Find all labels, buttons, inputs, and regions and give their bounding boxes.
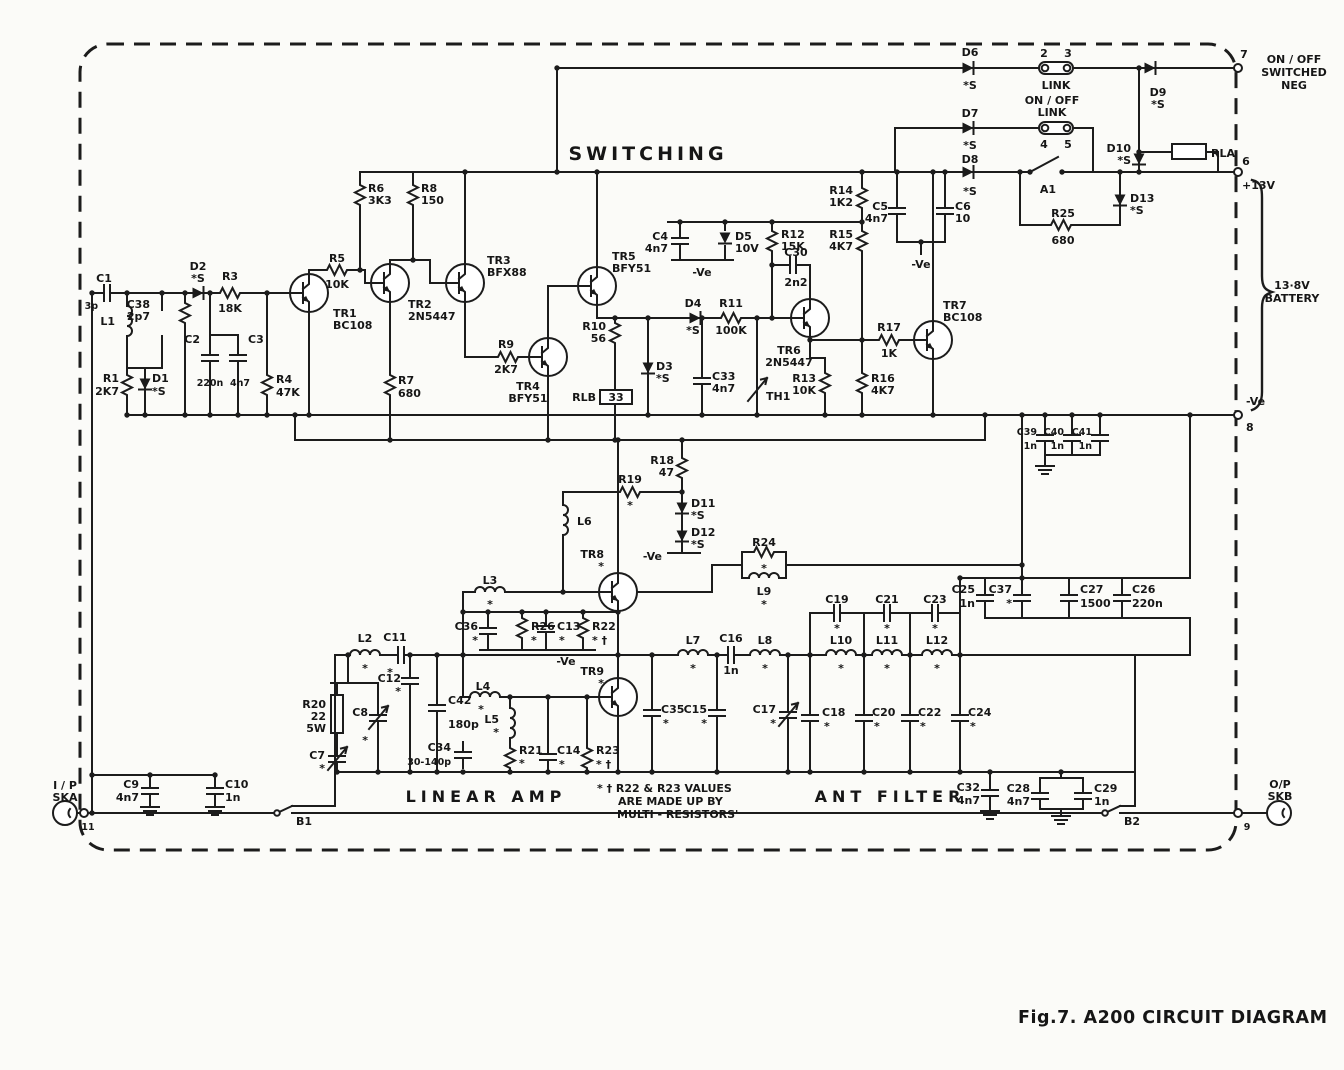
c42-capacitor xyxy=(429,695,445,721)
r4-resistor xyxy=(262,372,272,398)
r14-value: 1K2 xyxy=(829,196,853,209)
r23-resistor xyxy=(582,745,592,771)
r17-value: 1K xyxy=(881,347,898,360)
r26-label: R26 xyxy=(531,620,555,633)
neg-ve-c4d5: -Ve xyxy=(692,266,711,279)
r4-value: 47K xyxy=(276,386,300,399)
c21-value: * xyxy=(884,622,890,635)
c15-value: * xyxy=(701,717,707,730)
l12-label: L12 xyxy=(926,634,948,647)
terminal-7 xyxy=(1234,64,1242,72)
circuit-diagram-page: SWITCHING LINEAR AMP ANT FILTER Fig.7. A… xyxy=(0,0,1344,1070)
d7-diode xyxy=(963,122,974,134)
l4-label: L4 xyxy=(476,680,491,693)
r24-value: * xyxy=(761,562,767,575)
c18-label: C18 xyxy=(822,706,845,719)
c9-value: 4n7 xyxy=(116,791,139,804)
r19-resistor xyxy=(617,487,643,497)
l7-label: L7 xyxy=(686,634,701,647)
c39-label: C39 xyxy=(1017,427,1037,438)
r14-resistor xyxy=(857,185,867,211)
figure-caption: Fig.7. A200 CIRCUIT DIAGRAM xyxy=(1018,1008,1328,1028)
d10-diode xyxy=(1133,154,1145,165)
c24-capacitor xyxy=(952,705,968,731)
r21-label: R21 xyxy=(519,744,543,757)
r22-label: R22 xyxy=(592,620,616,633)
c37-value: * xyxy=(1006,597,1012,610)
r6-value: 3K3 xyxy=(368,194,392,207)
c9-capacitor xyxy=(142,778,158,804)
l5-value: * xyxy=(493,726,499,739)
c12-capacitor xyxy=(402,668,418,694)
c40-value: 1n xyxy=(1051,441,1065,452)
r23-value: * † xyxy=(596,758,612,771)
r2-resistor xyxy=(180,300,190,326)
l2-label: L2 xyxy=(358,632,373,645)
r17-resistor xyxy=(876,335,902,345)
c22-label: C22 xyxy=(918,706,941,719)
r12-resistor xyxy=(767,228,777,254)
d1-diode xyxy=(139,379,151,390)
r26-resistor xyxy=(517,615,527,641)
r26-value: * xyxy=(531,634,537,647)
d3-value: *S xyxy=(656,372,670,385)
c6-capacitor xyxy=(937,198,953,224)
c20-capacitor xyxy=(856,705,872,731)
c32-label: C32 xyxy=(957,781,980,794)
r13-resistor xyxy=(820,370,830,396)
tr9-value: * xyxy=(598,677,604,690)
ska-input-socket xyxy=(53,801,77,825)
d6-value: *S xyxy=(963,79,977,92)
d4-diode xyxy=(690,312,701,324)
c8-label: C8 xyxy=(352,706,368,719)
l11-inductor xyxy=(872,650,902,655)
link-pin2: 2 xyxy=(1040,47,1048,60)
c8-value: * xyxy=(362,734,368,747)
c2-value: 220n xyxy=(197,378,224,389)
c34-value: 30-140p xyxy=(407,757,451,768)
l3-inductor xyxy=(475,587,505,592)
tr3-value: BFX88 xyxy=(487,266,527,279)
c34-label: C34 xyxy=(428,741,452,754)
d6-label: D6 xyxy=(962,46,979,59)
c18-value: * xyxy=(824,720,830,733)
l9-value: * xyxy=(761,598,767,611)
neg-ve-pin8: -Ve xyxy=(1246,395,1265,408)
c33-value: 4n7 xyxy=(712,382,735,395)
r16-value: 4K7 xyxy=(871,384,895,397)
r15-value: 4K7 xyxy=(829,240,853,253)
c36-value: * xyxy=(472,634,478,647)
c12-label: C12 xyxy=(378,672,401,685)
r22-value: * † xyxy=(592,634,608,647)
c12-value: * xyxy=(395,685,401,698)
tr7-value: BC108 xyxy=(943,311,982,324)
c2-label: C2 xyxy=(184,333,200,346)
c5-value: 4n7 xyxy=(865,212,888,225)
l10-inductor xyxy=(826,650,856,655)
terminal-6 xyxy=(1234,168,1242,176)
c15-label: C15 xyxy=(684,703,707,716)
d8-value: *S xyxy=(963,185,977,198)
c29-capacitor xyxy=(1075,783,1091,809)
c23-value: * xyxy=(932,622,938,635)
c21-capacitor xyxy=(874,605,900,621)
l12-inductor xyxy=(922,650,952,655)
c35-capacitor xyxy=(644,700,660,726)
ska-label: SKA xyxy=(53,791,78,804)
tr2-value: 2N5447 xyxy=(408,310,455,323)
skb-output-socket xyxy=(1267,801,1291,825)
pin11-label: 11 xyxy=(81,822,94,833)
c19-capacitor xyxy=(824,605,850,621)
c37-label: C37 xyxy=(989,583,1012,596)
d7-label: D7 xyxy=(962,107,979,120)
d9-diode xyxy=(1145,62,1156,74)
r18-value: 47 xyxy=(659,466,674,479)
ground-icon xyxy=(1052,816,1070,824)
d5-value: 10V xyxy=(735,242,759,255)
l4-value: * xyxy=(478,703,484,716)
r7-label: R7 xyxy=(398,374,414,387)
c28-value: 4n7 xyxy=(1007,795,1030,808)
b2-label: B2 xyxy=(1124,815,1140,828)
on-off-link-4-5 xyxy=(1039,122,1073,134)
r25-value: 680 xyxy=(1052,234,1075,247)
r8-resistor xyxy=(408,182,418,208)
tr4-transistor xyxy=(529,338,567,376)
c25-value: 1n xyxy=(960,597,976,610)
switched-neg-line1: ON / OFF xyxy=(1267,53,1322,66)
c16-value: 1n xyxy=(723,664,739,677)
note-line1: * † R22 & R23 VALUES xyxy=(597,782,732,795)
c26-label: C26 xyxy=(1132,583,1156,596)
c11-label: C11 xyxy=(383,631,406,644)
r9-value: 2K7 xyxy=(494,363,518,376)
d11-value: *S xyxy=(691,509,705,522)
c27-capacitor xyxy=(1061,585,1077,611)
l3-value: * xyxy=(487,598,493,611)
r24-label: R24 xyxy=(752,536,776,549)
l7-value: * xyxy=(690,662,696,675)
c30-value: 2n2 xyxy=(784,276,807,289)
tr8-value: * xyxy=(598,560,604,573)
d9-value: *S xyxy=(1151,98,1165,111)
c7-label: C7 xyxy=(309,749,325,762)
c6-value: 10 xyxy=(955,212,971,225)
c2-capacitor xyxy=(202,345,218,371)
r19-value: * xyxy=(627,499,633,512)
c39-value: 1n xyxy=(1024,441,1038,452)
rla-label: RLA xyxy=(1211,147,1235,160)
labels: SWITCHING LINEAR AMP ANT FILTER Fig.7. A… xyxy=(53,46,1328,1028)
c41-value: 1n xyxy=(1079,441,1093,452)
r7-resistor xyxy=(385,372,395,398)
c10-label: C10 xyxy=(225,778,249,791)
c35-label: C35 xyxy=(661,703,684,716)
a1-switch-label: A1 xyxy=(1040,183,1056,196)
c13-value: * xyxy=(559,634,565,647)
note-line3: MULTI - RESISTORS' xyxy=(617,808,738,821)
l8-inductor xyxy=(750,650,780,655)
l2-inductor xyxy=(350,650,380,655)
link-pin4: 4 xyxy=(1040,138,1048,151)
r3-value: 18K xyxy=(218,302,242,315)
r13-value: 10K xyxy=(792,384,816,397)
l10-label: L10 xyxy=(830,634,853,647)
d1-value: *S xyxy=(152,385,166,398)
switched-neg-line2: SWITCHED xyxy=(1261,66,1327,79)
r5-resistor xyxy=(324,265,350,275)
pin9-label: 9 xyxy=(1244,822,1251,833)
c18-capacitor xyxy=(802,705,818,731)
r5-value: 10K xyxy=(325,278,349,291)
d13-diode xyxy=(1114,195,1126,206)
c36-capacitor xyxy=(480,618,496,644)
c13-label: C13 xyxy=(557,620,580,633)
l11-value: * xyxy=(884,662,890,675)
d3-diode xyxy=(642,363,654,374)
r21-resistor xyxy=(505,745,515,771)
r11-label: R11 xyxy=(719,297,743,310)
tr2-transistor xyxy=(371,264,409,302)
ground-icon xyxy=(1036,466,1054,474)
switched-neg-line3: NEG xyxy=(1281,79,1307,92)
c41-label: C41 xyxy=(1072,427,1092,438)
section-switching: SWITCHING xyxy=(568,143,727,165)
r9-resistor xyxy=(495,352,521,362)
c15-capacitor xyxy=(709,700,725,726)
c30-label: C30 xyxy=(784,246,808,259)
b2-contact xyxy=(1102,810,1108,816)
pin6-label: 6 xyxy=(1242,155,1250,168)
c26-capacitor xyxy=(1114,585,1130,611)
section-linear-amp: LINEAR AMP xyxy=(406,787,567,806)
c14-label: C14 xyxy=(557,744,581,757)
c1-label: C1 xyxy=(96,272,112,285)
d5-zener-diode xyxy=(719,233,731,244)
d1-label: D1 xyxy=(152,372,169,385)
r10-resistor xyxy=(610,320,620,346)
d4-value: *S xyxy=(686,324,700,337)
l7-inductor xyxy=(678,650,708,655)
c20-label: C20 xyxy=(872,706,896,719)
c24-value: * xyxy=(970,720,976,733)
l10-value: * xyxy=(838,662,844,675)
tr6-transistor xyxy=(791,299,829,337)
d12-value: *S xyxy=(691,538,705,551)
b1-label: B1 xyxy=(296,815,312,828)
tr8-transistor xyxy=(599,573,637,611)
c35-value: * xyxy=(663,717,669,730)
l12-value: * xyxy=(934,662,940,675)
c4-capacitor xyxy=(672,228,688,254)
c3-value: 4n7 xyxy=(230,378,250,389)
d10-value: *S xyxy=(1117,154,1131,167)
d11-diode xyxy=(676,503,688,514)
c3-capacitor xyxy=(230,345,246,371)
c20-value: * xyxy=(874,720,880,733)
c1-capacitor xyxy=(94,285,120,301)
c22-capacitor xyxy=(902,705,918,731)
th1-label: TH1 xyxy=(766,390,790,403)
r25-resistor xyxy=(1048,220,1074,230)
r10-value: 56 xyxy=(591,332,607,345)
c26-value: 220n xyxy=(1132,597,1163,610)
tr5-value: BFY51 xyxy=(612,262,651,275)
r17-label: R17 xyxy=(877,321,901,334)
d8-diode xyxy=(963,166,974,178)
l3-label: L3 xyxy=(483,574,498,587)
c19-label: C19 xyxy=(825,593,848,606)
d2-diode xyxy=(193,287,204,299)
l5-label: L5 xyxy=(484,713,499,726)
a200-circuit-schematic: SWITCHING LINEAR AMP ANT FILTER Fig.7. A… xyxy=(0,0,1344,1070)
c23-label: C23 xyxy=(923,593,946,606)
c24-label: C24 xyxy=(968,706,992,719)
terminal-9 xyxy=(1234,809,1242,817)
r16-resistor xyxy=(857,370,867,396)
c42-value: 180p xyxy=(448,718,479,731)
link-2-3 xyxy=(1039,62,1073,74)
c23-capacitor xyxy=(922,605,948,621)
r9-label: R9 xyxy=(498,338,514,351)
r11-resistor xyxy=(718,313,744,323)
c27-value: 1500 xyxy=(1080,597,1111,610)
r4-label: R4 xyxy=(276,373,292,386)
tr4-value: BFY51 xyxy=(508,392,547,405)
battery-label: BATTERY xyxy=(1265,292,1321,305)
r15-resistor xyxy=(857,228,867,254)
battery-voltage: 13·8V xyxy=(1274,279,1310,292)
tr3-transistor xyxy=(446,264,484,302)
r11-value: 100K xyxy=(715,324,747,337)
l8-label: L8 xyxy=(758,634,773,647)
c22-value: * xyxy=(920,720,926,733)
r8-value: 150 xyxy=(421,194,444,207)
pin7-label: 7 xyxy=(1240,48,1248,61)
r5-label: R5 xyxy=(329,252,345,265)
c29-value: 1n xyxy=(1094,795,1110,808)
l9-label: L9 xyxy=(757,585,772,598)
d8-label: D8 xyxy=(962,153,979,166)
c30-capacitor xyxy=(780,257,806,273)
d2-value: *S xyxy=(191,272,205,285)
c21-label: C21 xyxy=(875,593,898,606)
terminal-8 xyxy=(1234,411,1242,419)
c41-capacitor xyxy=(1092,425,1108,451)
c34-capacitor xyxy=(455,742,471,768)
c16-label: C16 xyxy=(719,632,743,645)
c36-label: C36 xyxy=(455,620,479,633)
tr9-transistor xyxy=(599,678,637,716)
rlb-label: RLB xyxy=(572,391,596,404)
neg-ve-c5c6: -Ve xyxy=(911,258,930,271)
r1-value: 2K7 xyxy=(95,385,119,398)
c32-value: 4n7 xyxy=(957,794,980,807)
l5-inductor xyxy=(510,708,515,738)
c10-capacitor xyxy=(207,778,223,804)
terminal-11 xyxy=(80,809,88,817)
c14-value: * xyxy=(559,758,565,771)
c9-label: C9 xyxy=(123,778,139,791)
r20-resistor xyxy=(331,695,343,733)
c40-label: C40 xyxy=(1044,427,1065,438)
r1-resistor xyxy=(122,372,132,398)
r3-resistor xyxy=(217,288,243,298)
r18-resistor xyxy=(677,455,687,481)
r7-value: 680 xyxy=(398,387,421,400)
c5-capacitor xyxy=(889,198,905,224)
l2-value: * xyxy=(362,662,368,675)
c7-value: * xyxy=(319,762,325,775)
c33-capacitor xyxy=(694,368,710,394)
note-line2: ARE MADE UP BY xyxy=(618,795,724,808)
b1-contact xyxy=(274,810,280,816)
l8-value: * xyxy=(762,662,768,675)
plus13v-label: +13V xyxy=(1242,179,1276,192)
neg-ve-d12: -Ve xyxy=(643,550,662,563)
c27-label: C27 xyxy=(1080,583,1103,596)
r21-value: * xyxy=(519,757,525,770)
c3-label: C3 xyxy=(248,333,264,346)
c4-value: 4n7 xyxy=(645,242,668,255)
r6-resistor xyxy=(355,182,365,208)
link-label: LINK xyxy=(1042,79,1071,92)
r23-label: R23 xyxy=(596,744,620,757)
d13-value: *S xyxy=(1130,204,1144,217)
c17-value: * xyxy=(770,717,776,730)
c28-capacitor xyxy=(1032,783,1048,809)
c17-label: C17 xyxy=(753,703,776,716)
c38-value: 2p7 xyxy=(127,310,150,323)
r1-label: R1 xyxy=(103,372,119,385)
d12-diode xyxy=(676,531,688,542)
tr1-value: BC108 xyxy=(333,319,372,332)
tr6-value: 2N5447 xyxy=(765,356,812,369)
c42-label: C42 xyxy=(448,694,471,707)
c1-value: 3p xyxy=(85,301,99,312)
c16-capacitor xyxy=(718,647,744,663)
neg-ve-bias: -Ve xyxy=(556,655,575,668)
d7-value: *S xyxy=(963,139,977,152)
d4-label: D4 xyxy=(685,297,702,310)
rla-relay-coil xyxy=(1172,144,1206,159)
r20-wattage: 5W xyxy=(306,722,326,735)
tr7-transistor xyxy=(914,321,952,359)
l6-label: L6 xyxy=(577,515,592,528)
l1-label: L1 xyxy=(100,315,115,328)
c29-label: C29 xyxy=(1094,782,1117,795)
c10-value: 1n xyxy=(225,791,241,804)
tr1-transistor xyxy=(290,274,328,312)
c32-capacitor xyxy=(982,780,998,806)
c28-label: C28 xyxy=(1007,782,1030,795)
r19-label: R19 xyxy=(618,473,642,486)
d6-diode xyxy=(963,62,974,74)
tr5-transistor xyxy=(578,267,616,305)
link-pin5: 5 xyxy=(1064,138,1072,151)
c25-label: C25 xyxy=(952,583,975,596)
l6-inductor xyxy=(563,505,568,535)
r3-label: R3 xyxy=(222,270,238,283)
rlb-value: 33 xyxy=(608,391,623,404)
section-ant-filter: ANT FILTER xyxy=(815,787,966,806)
pin8-label: 8 xyxy=(1246,421,1254,434)
skb-label: SKB xyxy=(1268,790,1293,803)
l11-label: L11 xyxy=(876,634,898,647)
